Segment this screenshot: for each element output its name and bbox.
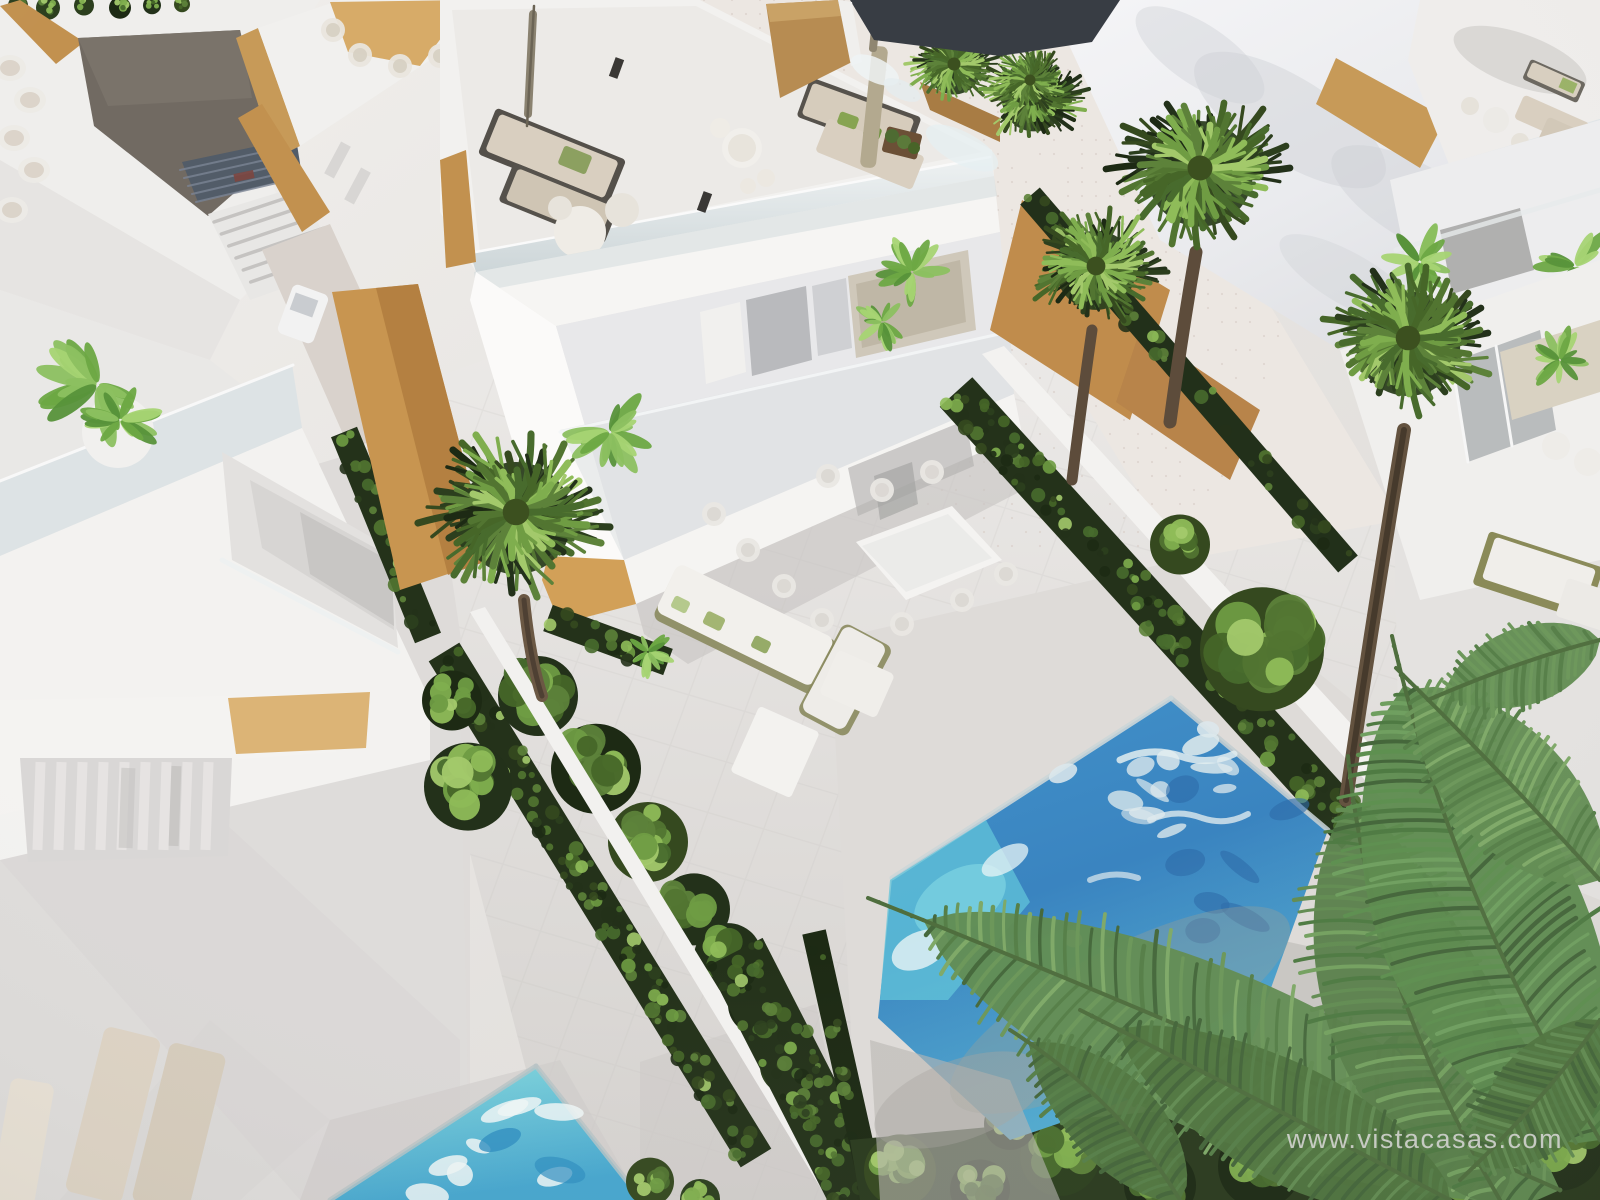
svg-text:www.vistacasas.com: www.vistacasas.com <box>1286 1124 1563 1154</box>
